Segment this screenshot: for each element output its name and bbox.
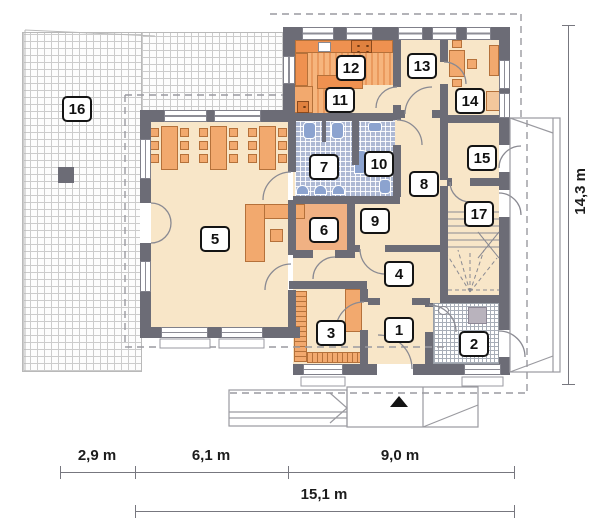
room-number: 9 — [371, 213, 379, 230]
room-number: 8 — [420, 176, 428, 193]
room-label-9: 9 — [360, 208, 390, 234]
room-label-4: 4 — [384, 261, 414, 287]
dimension-tick — [60, 466, 61, 479]
dimension-tick — [562, 25, 575, 26]
dimension-label: 14,3 m — [572, 168, 589, 215]
room-label-7: 7 — [309, 154, 339, 180]
dimension-label: 6,1 m — [181, 447, 241, 464]
room-label-13: 13 — [407, 53, 437, 79]
room-label-2: 2 — [459, 331, 489, 357]
room-label-8: 8 — [409, 171, 439, 197]
dimension-label: 9,0 m — [370, 447, 430, 464]
room-number: 14 — [462, 93, 479, 110]
room-label-1: 1 — [384, 317, 414, 343]
dimension-line-bottom — [60, 472, 514, 473]
room-label-6: 6 — [309, 217, 339, 243]
dimension-label: 15,1 m — [294, 486, 354, 503]
room-label-11: 11 — [325, 87, 355, 113]
room-number: 7 — [320, 159, 328, 176]
room-label-5: 5 — [200, 226, 230, 252]
plan-linework — [0, 0, 603, 520]
dimension-tick — [514, 466, 515, 479]
dimension-tick — [514, 505, 515, 518]
dimension-label: 2,9 m — [67, 447, 127, 464]
room-number: 13 — [414, 58, 431, 75]
room-number: 4 — [395, 266, 403, 283]
dimension-tick — [562, 384, 575, 385]
room-label-3: 3 — [316, 320, 346, 346]
entrance-arrow-icon — [390, 396, 408, 407]
dimension-line-right — [568, 25, 569, 384]
room-number: 17 — [471, 206, 488, 223]
room-label-17: 17 — [464, 201, 494, 227]
room-number: 3 — [327, 325, 335, 342]
room-number: 2 — [470, 336, 478, 353]
room-number: 15 — [474, 150, 491, 167]
room-label-14: 14 — [455, 88, 485, 114]
room-number: 1 — [395, 322, 403, 339]
room-number: 10 — [371, 156, 388, 173]
right-porch — [510, 118, 560, 372]
terrace-edge — [25, 30, 155, 372]
window-sills — [160, 339, 503, 386]
dimension-tick — [135, 505, 136, 518]
dimension-tick — [135, 466, 136, 479]
room-number: 11 — [332, 92, 348, 109]
room-number: 6 — [320, 222, 328, 239]
room-label-12: 12 — [336, 55, 366, 81]
room-number: 16 — [69, 101, 86, 118]
room-label-10: 10 — [364, 151, 394, 177]
room-number: 12 — [343, 60, 360, 77]
room-label-15: 15 — [467, 145, 497, 171]
dimension-tick — [288, 466, 289, 479]
room-number: 5 — [211, 231, 219, 248]
floor-plan: 1 2 3 4 5 6 7 8 9 10 11 12 13 14 15 16 1… — [0, 0, 603, 520]
room-label-16: 16 — [62, 96, 92, 122]
dimension-line-total — [135, 511, 514, 512]
